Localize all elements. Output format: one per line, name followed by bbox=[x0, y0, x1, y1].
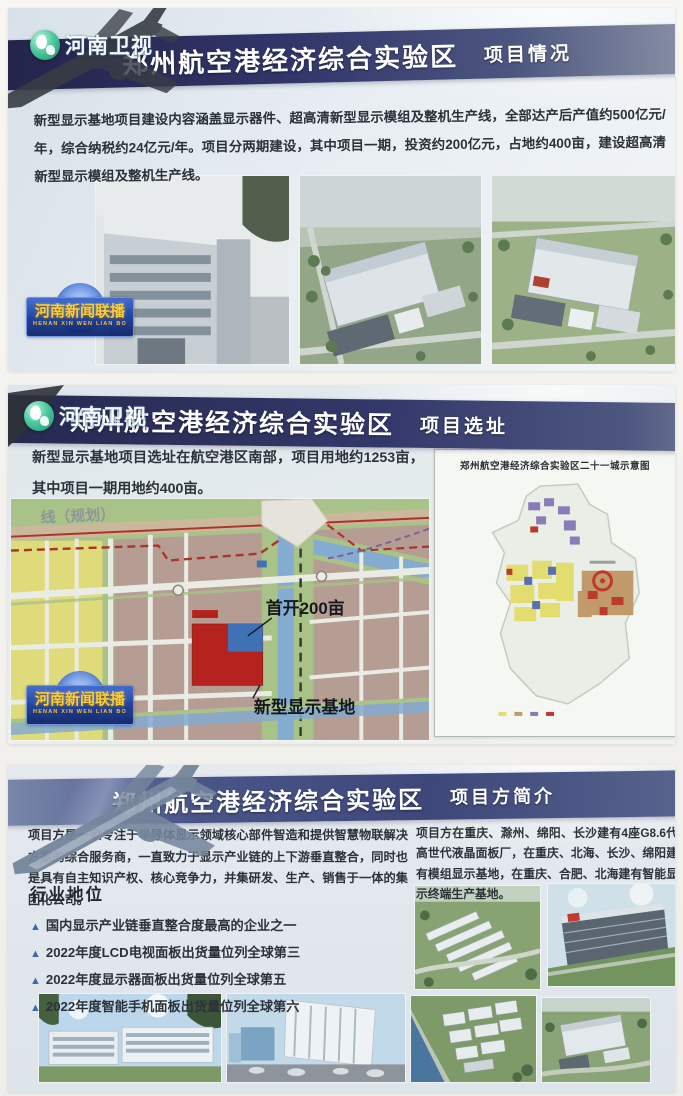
watermark-subtitle: HENAN XIN WEN LIAN BO bbox=[26, 321, 134, 327]
bullet-text: 2022年度LCD电视面板出货量位列全球第三 bbox=[46, 940, 300, 965]
photo-factory-aerial bbox=[541, 997, 651, 1083]
panel3-subtitle: 项目方简介 bbox=[450, 782, 555, 809]
board-project-party: 郑州航空港经济综合实验区 项目方简介 项目方是一家专注于半导体显示领域核心部件智… bbox=[8, 765, 675, 1092]
industry-bullet: ▲ 2022年度显示器面板出货量位列全球第五 bbox=[30, 967, 300, 994]
project-site-paragraph: 新型显示基地项目选址在航空港区南部，项目用地约1253亩，其中项目一期用地约40… bbox=[32, 443, 424, 505]
panel1-title: 郑州航空港经济综合实验区 bbox=[122, 36, 459, 81]
panel3-title: 郑州航空港经济综合实验区 bbox=[112, 779, 424, 818]
inset-map-title: 郑州航空港经济综合实验区二十一城示意图 bbox=[441, 458, 669, 472]
tv-station-name: 河南卫视 bbox=[59, 401, 147, 431]
tv-globe-icon bbox=[30, 30, 60, 60]
panel3-header-bar: 郑州航空港经济综合实验区 项目方简介 bbox=[8, 770, 675, 826]
news-photo-montage: 郑州航空港经济综合实验区 项目情况 河南卫视 新型显示基地项目建设内容涵盖显示器… bbox=[0, 0, 683, 1096]
panel2-subtitle: 项目选址 bbox=[420, 410, 508, 438]
triangle-bullet-icon: ▲ bbox=[30, 915, 41, 940]
project-overview-paragraph: 新型显示基地项目建设内容涵盖显示器件、超高清新型显示模组及整机生产线，全部达产后… bbox=[34, 101, 667, 192]
tv-station-name: 河南卫视 bbox=[65, 30, 153, 60]
news-program-watermark: 河南新闻联播 HENAN XIN WEN LIAN BO bbox=[26, 676, 134, 730]
bullet-text: 2022年度显示器面板出货量位列全球第五 bbox=[46, 967, 286, 992]
industry-bullet: ▲ 2022年度智能手机面板出货量位列全球第六 bbox=[30, 994, 300, 1021]
watermark-title: 河南新闻联播 bbox=[26, 300, 134, 321]
inset-map-graphic bbox=[441, 472, 669, 724]
board-project-site: 郑州航空港经济综合实验区 项目选址 河南卫视 新型显示基地项目选址在航空港区南部… bbox=[8, 385, 675, 744]
watermark-title: 河南新闻联播 bbox=[26, 688, 134, 709]
district-overview-inset-map: 郑州航空港经济综合实验区二十一城示意图 bbox=[434, 449, 675, 737]
tv-globe-icon bbox=[24, 401, 54, 431]
rendering-image-row bbox=[95, 175, 675, 365]
triangle-bullet-icon: ▲ bbox=[30, 942, 41, 967]
industry-position-section: 行业地位 ▲ 国内显示产业链垂直整合度最高的企业之一 ▲ 2022年度LCD电视… bbox=[30, 881, 300, 1021]
industry-bullet: ▲ 国内显示产业链垂直整合度最高的企业之一 bbox=[30, 913, 300, 940]
rendering-aerial-factory-2 bbox=[491, 175, 675, 365]
news-program-watermark: 河南新闻联播 HENAN XIN WEN LIAN BO bbox=[26, 288, 134, 342]
panel1-subtitle: 项目情况 bbox=[484, 38, 573, 67]
tv-station-logo: 河南卫视 bbox=[30, 30, 153, 60]
photo-industrial-park-river bbox=[410, 995, 537, 1083]
triangle-bullet-icon: ▲ bbox=[30, 969, 41, 994]
map-label-first-phase: 首开200亩 bbox=[266, 598, 345, 618]
triangle-bullet-icon: ▲ bbox=[30, 996, 41, 1021]
industry-bullet: ▲ 2022年度LCD电视面板出货量位列全球第三 bbox=[30, 940, 300, 967]
bullet-text: 国内显示产业链垂直整合度最高的企业之一 bbox=[46, 913, 297, 938]
bullet-text: 2022年度智能手机面板出货量位列全球第六 bbox=[46, 994, 300, 1019]
watermark-subtitle: HENAN XIN WEN LIAN BO bbox=[26, 709, 134, 715]
board-project-overview: 郑州航空港经济综合实验区 项目情况 河南卫视 新型显示基地项目建设内容涵盖显示器… bbox=[8, 8, 675, 371]
map-label-display-base: 新型显示基地 bbox=[254, 697, 356, 717]
tv-station-logo: 河南卫视 bbox=[24, 401, 147, 431]
project-party-paragraph-right: 项目方在重庆、滁州、绵阳、长沙建有4座G8.6代高世代液晶面板厂，在重庆、北海、… bbox=[416, 823, 675, 904]
industry-heading: 行业地位 bbox=[30, 881, 300, 905]
rendering-aerial-factory-1 bbox=[299, 175, 482, 365]
